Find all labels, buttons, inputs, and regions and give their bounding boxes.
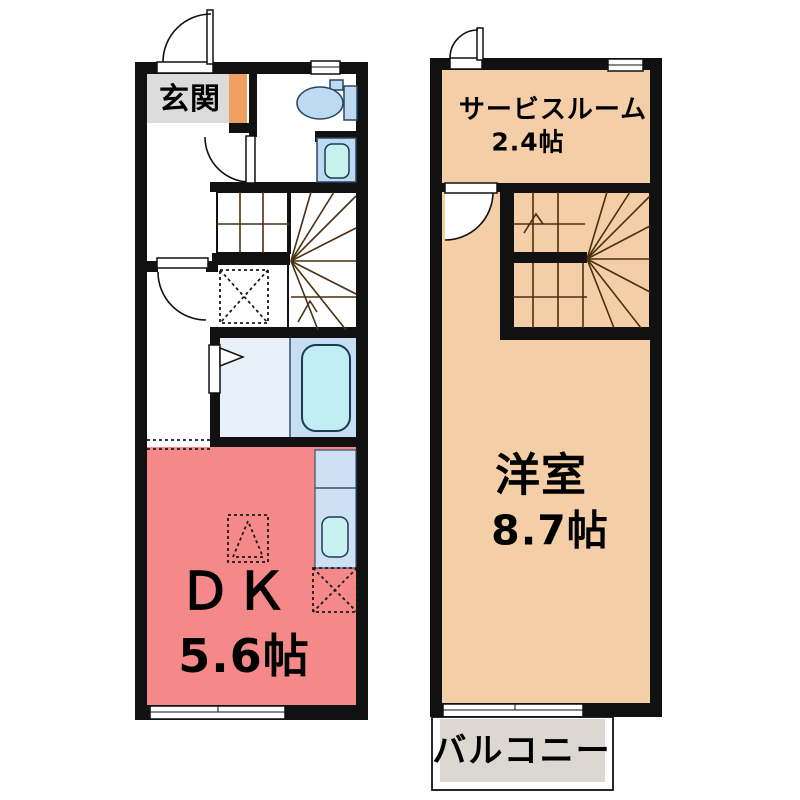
floor2-outer-wall-left xyxy=(430,58,442,717)
dk-room-label: ＤＫ xyxy=(179,566,291,618)
toilet-window xyxy=(311,61,340,74)
service-room-entry-door xyxy=(450,28,483,69)
floor1-outer-wall-left xyxy=(135,62,147,720)
kitchen-counter xyxy=(315,450,356,568)
floor2-top-window xyxy=(608,59,643,71)
toilet-room-wall xyxy=(249,74,257,137)
service-room-area xyxy=(442,70,650,183)
western-room-area xyxy=(442,192,650,703)
floor-plan-drawing xyxy=(0,0,800,800)
entrance-door xyxy=(157,10,213,73)
floor2-outer-wall-right xyxy=(650,58,662,717)
floor2-bottom-window xyxy=(443,704,583,717)
floor1-outer-wall-right xyxy=(356,62,368,720)
western-room-label: 洋室 xyxy=(495,453,587,498)
western-room-size: 8.7帖 xyxy=(491,511,609,552)
kitchen-sink-icon xyxy=(322,517,348,557)
dk-room-size: 5.6帖 xyxy=(178,633,310,679)
genkan-label: 玄関 xyxy=(159,85,221,115)
washbasin-icon xyxy=(317,138,356,182)
bathroom xyxy=(290,338,356,437)
floor1-bottom-window xyxy=(150,706,285,719)
service-room-size: 2.4帖 xyxy=(491,130,564,155)
service-room-label: サービスルーム xyxy=(459,97,647,123)
floor-plan-page: 玄関 ＤＫ 5.6帖 サービスルーム 2.4帖 洋室 8.7帖 バルコニー co… xyxy=(0,0,800,800)
bathtub-icon xyxy=(302,345,350,431)
balcony-label: バルコニー xyxy=(432,734,611,768)
genkan-step xyxy=(229,74,247,123)
